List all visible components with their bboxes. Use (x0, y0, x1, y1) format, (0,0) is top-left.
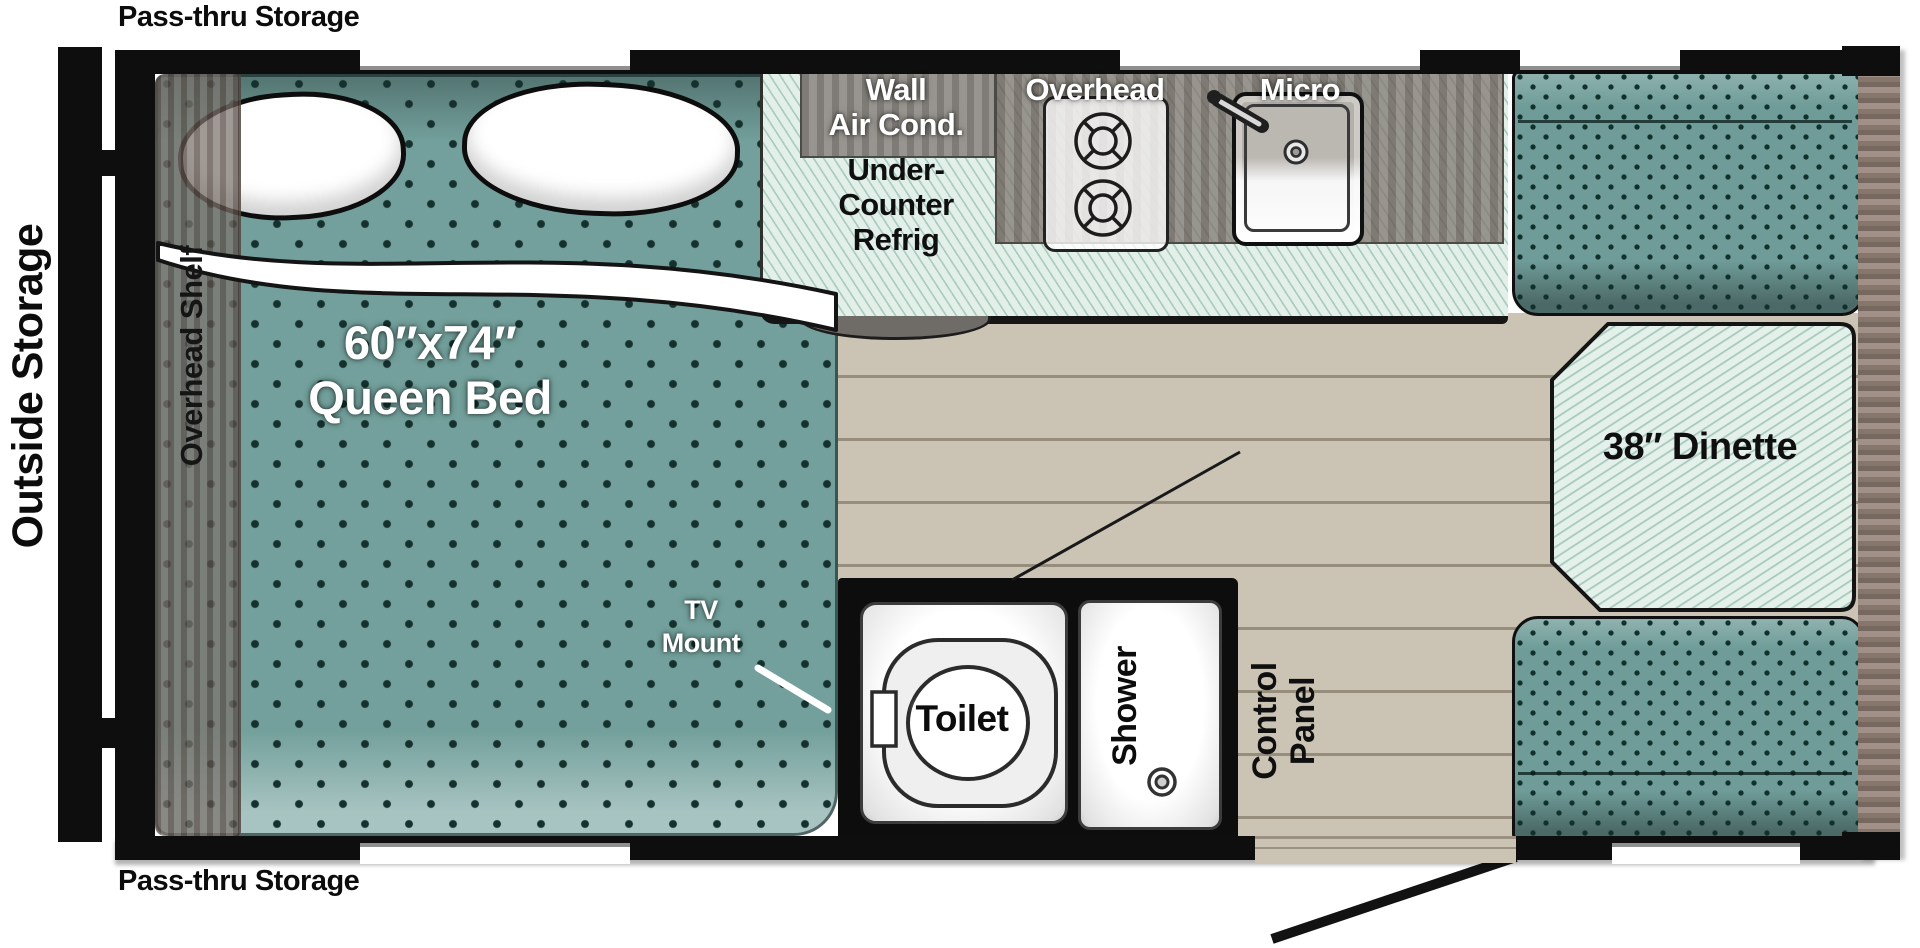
pass-thru-top-text: Pass-thru Storage (118, 1, 359, 33)
shower-text: Shower (1106, 646, 1144, 766)
overhead-cabinet-label: Overhead (1000, 74, 1190, 107)
micro-text: Micro (1260, 72, 1340, 107)
overhead-shelf-label: Overhead Shelf (176, 190, 214, 522)
dinette-bench-top-seam (1518, 120, 1852, 123)
outside-storage-text: Outside Storage (4, 224, 52, 549)
shower-pan (1078, 600, 1222, 830)
control-panel-line2: Panel (1284, 614, 1322, 828)
pass-thru-storage-label-bottom: Pass-thru Storage (118, 866, 359, 896)
bed-size-label: 60″x74″ Queen Bed (250, 318, 610, 423)
stove-icon (1043, 96, 1169, 252)
pass-thru-storage-label-top: Pass-thru Storage (118, 2, 359, 32)
entry-door-opening (1255, 836, 1516, 863)
tv-mount-line1: TV (640, 596, 762, 624)
bed-name-text: Queen Bed (250, 373, 610, 422)
overhead-text: Overhead (1025, 72, 1164, 107)
dinette-label: 38″ Dinette (1560, 428, 1840, 468)
corner-top-right (1842, 46, 1900, 76)
outside-storage-compartment (58, 47, 102, 842)
tv-mount-label: TV Mount (640, 596, 762, 658)
fridge-line3: Refrig (790, 222, 1002, 257)
window-opening (360, 843, 630, 864)
storage-connector-bottom (100, 718, 130, 748)
window-opening (1612, 843, 1800, 864)
rv-floorplan: Overhead Shelf 60″x74″ Queen Bed TV Moun… (0, 0, 1920, 948)
door-swing-line (1272, 857, 1516, 939)
sink-basin (1244, 104, 1350, 232)
corner-bottom-right (1842, 832, 1900, 860)
toilet-text: Toilet (916, 698, 1009, 739)
under-counter-refrigerator-label: Under- Counter Refrig (790, 152, 1002, 257)
wall-ac-label: Wall Air Cond. (800, 74, 992, 141)
outside-storage-label: Outside Storage (6, 144, 56, 628)
overhead-shelf-text: Overhead Shelf (174, 246, 209, 466)
fridge-line2: Counter (790, 187, 1002, 222)
window-opening (1120, 49, 1420, 70)
storage-connector-top (100, 150, 130, 176)
dinette-bench-top (1512, 70, 1864, 316)
control-panel-line1: Control (1246, 614, 1284, 828)
fridge-line1: Under- (790, 152, 1002, 187)
shower-label: Shower (1108, 600, 1148, 812)
window-opening (1520, 49, 1680, 70)
entry-door-threshold (1255, 847, 1516, 849)
control-panel-label: Control Panel (1246, 614, 1324, 828)
wall-ac-line2: Air Cond. (800, 109, 992, 142)
microwave-label: Micro (1235, 74, 1365, 107)
trailer-wall-right-wood (1858, 50, 1900, 860)
wall-ac-line1: Wall (800, 74, 992, 107)
window-opening (360, 49, 630, 70)
toilet-label: Toilet (862, 700, 1062, 739)
dinette-bench-bottom (1512, 616, 1864, 842)
tv-mount-line2: Mount (640, 629, 762, 657)
dinette-bench-bottom-seam (1518, 772, 1852, 775)
bed-size-text: 60″x74″ (250, 318, 610, 367)
dinette-text: 38″ Dinette (1603, 426, 1797, 468)
pass-thru-bottom-text: Pass-thru Storage (118, 865, 359, 897)
